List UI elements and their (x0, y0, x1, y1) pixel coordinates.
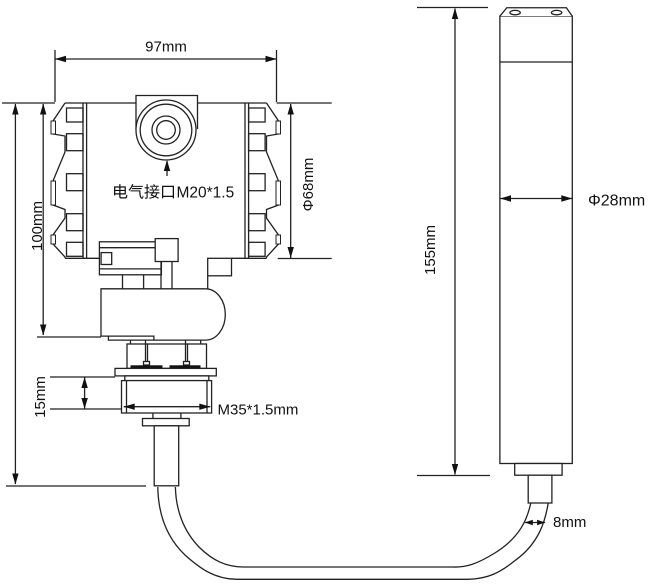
svg-text:8mm: 8mm (553, 514, 586, 531)
svg-text:Φ28mm: Φ28mm (588, 193, 645, 210)
svg-text:155mm: 155mm (422, 225, 439, 275)
svg-text:Φ68mm: Φ68mm (300, 158, 317, 212)
svg-text:M20*1.5: M20*1.5 (177, 185, 235, 202)
svg-text:100mm: 100mm (29, 201, 46, 251)
svg-text:M35*1.5mm: M35*1.5mm (218, 402, 299, 419)
svg-text:97mm: 97mm (145, 39, 187, 56)
svg-text:15mm: 15mm (32, 376, 49, 418)
